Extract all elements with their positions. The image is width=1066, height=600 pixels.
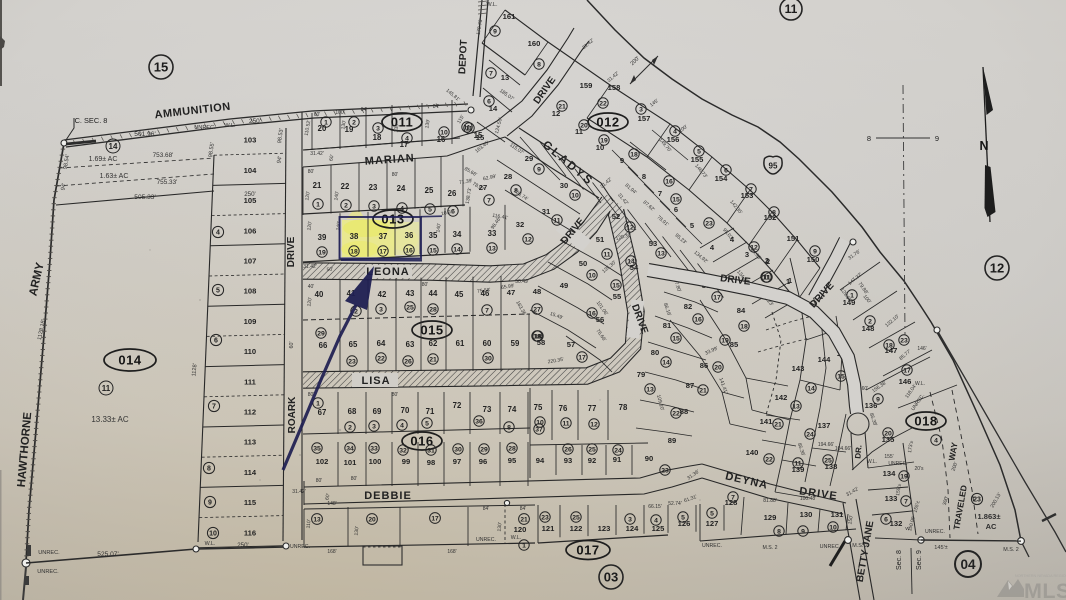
svg-text:18: 18 [350,248,358,255]
svg-text:8: 8 [537,61,541,68]
svg-text:23: 23 [900,337,908,344]
svg-text:11: 11 [562,420,569,427]
svg-text:UNREC.: UNREC. [925,529,945,535]
svg-text:W.L.: W.L. [486,2,498,8]
svg-text:21: 21 [558,103,566,110]
svg-text:84': 84' [483,506,490,512]
svg-text:130': 130' [497,522,504,532]
svg-text:140': 140' [435,223,442,233]
svg-text:15: 15 [612,282,620,289]
svg-text:7: 7 [904,498,908,505]
svg-text:66: 66 [319,341,328,350]
svg-text:6: 6 [487,98,491,105]
svg-text:DEBBIE: DEBBIE [364,490,412,502]
svg-text:125: 125 [652,524,665,533]
svg-text:9: 9 [493,28,497,35]
svg-text:UNREC.: UNREC. [476,537,496,543]
svg-text:60': 60' [328,154,335,162]
svg-text:24: 24 [806,431,814,438]
svg-text:100': 100' [335,110,344,116]
svg-text:102: 102 [316,457,329,466]
svg-text:110: 110 [244,347,256,356]
svg-text:7: 7 [485,307,489,314]
svg-text:93: 93 [564,456,572,465]
svg-text:25: 25 [406,304,414,311]
svg-text:71: 71 [426,407,435,416]
svg-text:42: 42 [378,290,387,299]
svg-text:28: 28 [429,306,437,313]
svg-text:79: 79 [637,370,645,379]
svg-text:7: 7 [487,197,491,204]
svg-text:34: 34 [346,445,354,452]
svg-text:100: 100 [369,457,382,466]
svg-text:89: 89 [668,436,676,445]
svg-text:114: 114 [244,468,257,477]
svg-text:1128': 1128' [191,363,198,377]
svg-text:4: 4 [216,230,220,237]
svg-text:14: 14 [807,385,815,392]
svg-text:14: 14 [453,246,461,253]
svg-text:127: 127 [706,519,719,528]
svg-text:3: 3 [372,423,376,430]
svg-text:17: 17 [713,294,721,301]
svg-text:137: 137 [818,421,831,430]
svg-text:24: 24 [614,447,622,454]
svg-text:14: 14 [662,359,670,366]
svg-text:69: 69 [373,407,382,416]
svg-text:92: 92 [588,456,596,465]
svg-text:32: 32 [516,220,524,229]
svg-text:156: 156 [667,135,680,144]
svg-text:60: 60 [483,339,492,348]
svg-text:9: 9 [813,248,817,255]
svg-text:14: 14 [109,142,118,151]
svg-text:8: 8 [507,424,511,431]
svg-text:MLS: MLS [1024,579,1066,600]
svg-text:95: 95 [508,456,517,465]
svg-text:45: 45 [455,290,464,299]
svg-text:106: 106 [244,226,257,235]
svg-text:Sec. 9: Sec. 9 [916,550,923,570]
svg-text:25: 25 [425,186,434,195]
svg-text:19: 19 [600,137,608,144]
svg-text:26: 26 [564,446,572,453]
svg-text:250': 250' [237,542,249,549]
svg-text:74: 74 [508,405,517,414]
svg-text:73: 73 [483,405,492,414]
svg-text:31.42': 31.42' [292,489,306,495]
svg-text:20's: 20's [914,466,924,472]
svg-text:2: 2 [352,119,356,126]
svg-text:109: 109 [244,317,257,326]
svg-text:AC: AC [986,522,997,531]
svg-text:168': 168' [447,549,456,555]
svg-text:4: 4 [934,437,938,444]
svg-text:47: 47 [507,288,515,297]
svg-text:146': 146' [917,346,926,352]
svg-text:129: 129 [764,513,777,522]
svg-text:12: 12 [626,224,634,231]
svg-text:10: 10 [571,192,579,199]
svg-text:9: 9 [208,500,212,507]
svg-text:501.96': 501.96' [134,131,155,138]
svg-text:13: 13 [488,245,496,252]
svg-text:012: 012 [596,114,619,129]
svg-text:35: 35 [313,445,321,452]
svg-text:21: 21 [313,181,322,190]
svg-text:9: 9 [537,166,541,173]
svg-text:113: 113 [244,438,256,447]
svg-text:11: 11 [465,125,472,132]
svg-text:31: 31 [427,447,435,454]
svg-text:80': 80' [422,282,429,288]
svg-text:107: 107 [244,257,257,266]
svg-text:UNREC.: UNREC. [702,543,722,549]
svg-text:4: 4 [400,422,404,429]
svg-text:29: 29 [480,446,488,453]
svg-text:1.63± AC: 1.63± AC [100,173,129,180]
svg-text:LISA: LISA [361,375,390,387]
svg-text:51: 51 [596,235,605,244]
svg-text:28: 28 [504,172,512,181]
svg-text:22: 22 [341,182,350,191]
svg-text:15: 15 [672,196,680,203]
svg-text:194.66': 194.66' [818,442,834,448]
svg-text:62: 62 [429,339,438,348]
svg-text:80': 80' [308,169,315,175]
svg-text:753.68': 753.68' [153,152,174,159]
svg-text:013: 013 [381,211,404,226]
svg-text:M.S. 2: M.S. 2 [763,545,778,551]
svg-text:55: 55 [613,292,622,301]
svg-text:6: 6 [674,205,678,214]
svg-text:123: 123 [598,524,611,533]
svg-text:31: 31 [542,207,551,216]
svg-text:52.74': 52.74' [668,501,682,507]
svg-text:8: 8 [867,134,871,143]
svg-text:37: 37 [535,426,543,433]
svg-text:7: 7 [749,186,753,193]
svg-text:148': 148' [327,501,336,507]
svg-text:23: 23 [973,497,981,504]
svg-text:13: 13 [501,73,509,82]
svg-text:122: 122 [570,524,583,533]
svg-text:9: 9 [876,396,880,403]
svg-text:3: 3 [372,203,376,210]
svg-text:UNREC.: UNREC. [38,550,60,556]
svg-text:115: 115 [244,498,257,507]
svg-text:W.L.: W.L. [205,541,216,547]
svg-text:63: 63 [406,340,415,349]
svg-text:29: 29 [525,154,533,163]
svg-text:22: 22 [377,355,385,362]
svg-text:6: 6 [724,167,728,174]
svg-text:6: 6 [214,338,218,345]
svg-text:1.863±: 1.863± [978,512,1001,521]
svg-text:91: 91 [613,455,622,464]
svg-text:59: 59 [511,339,520,348]
svg-text:15: 15 [154,60,168,75]
svg-text:15: 15 [672,335,680,342]
svg-text:4: 4 [654,517,658,524]
svg-text:13: 13 [657,250,665,257]
svg-text:141: 141 [760,417,773,426]
svg-text:61: 61 [456,339,465,348]
svg-text:80': 80' [392,392,399,398]
svg-text:13: 13 [646,386,654,393]
svg-text:11: 11 [603,251,610,258]
svg-text:76: 76 [559,404,568,413]
svg-text:NORTHERN NEVADA REGIONAL: NORTHERN NEVADA REGIONAL [1015,574,1066,578]
svg-text:018: 018 [914,413,937,428]
svg-text:85: 85 [730,340,739,349]
svg-text:34: 34 [453,230,462,239]
svg-text:12: 12 [590,421,598,428]
svg-text:16: 16 [665,178,673,185]
svg-text:5: 5 [681,514,685,521]
svg-text:3: 3 [628,516,632,523]
svg-text:66.15': 66.15' [648,504,662,510]
svg-text:101: 101 [344,458,357,467]
svg-text:UNREC.: UNREC. [194,125,216,131]
svg-text:24: 24 [397,184,406,193]
svg-text:25: 25 [588,446,596,453]
svg-text:1: 1 [522,542,526,549]
svg-text:111: 111 [244,377,257,386]
svg-text:3: 3 [639,106,643,113]
svg-text:26: 26 [404,358,412,365]
svg-text:7: 7 [212,404,216,411]
svg-text:150: 150 [807,255,820,264]
svg-text:W.L.: W.L. [224,123,236,129]
svg-text:121: 121 [542,524,555,533]
svg-text:N: N [979,139,988,153]
svg-text:56: 56 [596,315,604,324]
svg-text:21: 21 [774,421,782,428]
svg-text:145'±: 145'± [934,545,947,551]
svg-text:31.42': 31.42' [310,151,324,157]
svg-text:30: 30 [560,181,568,190]
svg-text:110': 110' [306,519,313,528]
svg-text:53: 53 [649,239,657,248]
svg-text:2: 2 [348,424,352,431]
svg-text:33: 33 [370,445,378,452]
svg-text:40': 40' [308,284,315,290]
svg-text:10: 10 [209,531,217,538]
svg-text:2: 2 [766,257,770,266]
svg-text:82: 82 [684,302,692,311]
svg-text:16: 16 [694,316,702,323]
svg-text:39: 39 [318,233,327,242]
svg-text:130: 130 [800,510,813,519]
svg-text:67: 67 [318,408,327,417]
svg-text:W.L.: W.L. [511,535,521,541]
svg-text:80: 80 [651,348,659,357]
svg-text:28: 28 [508,445,516,452]
svg-text:20: 20 [714,364,722,371]
svg-text:5: 5 [697,148,701,155]
svg-text:29: 29 [317,330,325,337]
svg-text:11: 11 [553,217,560,224]
svg-text:78: 78 [619,403,628,412]
svg-text:94: 94 [536,456,545,465]
svg-text:22: 22 [672,410,680,417]
svg-text:7: 7 [658,189,662,198]
svg-text:25: 25 [572,514,580,521]
svg-text:26: 26 [448,189,457,198]
svg-text:15: 15 [429,247,437,254]
svg-text:12: 12 [990,261,1004,276]
svg-text:57: 57 [567,340,575,349]
svg-text:5: 5 [428,206,432,213]
svg-text:120': 120' [304,191,311,201]
svg-text:99: 99 [402,457,410,466]
svg-text:18: 18 [885,342,893,349]
svg-text:015: 015 [420,322,443,337]
svg-text:80': 80' [392,172,399,178]
svg-text:23: 23 [705,220,713,227]
svg-text:9: 9 [935,134,939,143]
svg-text:5: 5 [710,510,714,517]
svg-text:142: 142 [775,393,788,402]
svg-text:97: 97 [453,457,461,466]
svg-text:60': 60' [314,112,321,118]
svg-text:52: 52 [612,212,620,221]
svg-text:98: 98 [427,458,435,467]
svg-text:16: 16 [405,247,413,254]
svg-text:18: 18 [740,323,748,330]
svg-text:4: 4 [405,135,409,142]
svg-text:20: 20 [884,430,892,437]
svg-text:M.S. 2: M.S. 2 [1003,547,1019,553]
svg-text:17: 17 [578,354,586,361]
svg-text:2: 2 [868,318,872,325]
svg-text:7: 7 [489,70,493,77]
svg-text:8: 8 [207,466,211,473]
svg-text:158: 158 [608,83,621,92]
svg-text:80': 80' [351,476,358,482]
svg-text:1: 1 [324,119,328,126]
svg-text:8: 8 [642,172,646,181]
svg-text:1: 1 [316,201,320,208]
svg-text:161: 161 [503,12,516,21]
svg-text:159: 159 [580,81,593,90]
svg-text:95: 95 [769,162,778,171]
svg-text:11: 11 [102,384,111,393]
svg-text:120': 120' [306,221,313,231]
svg-text:11: 11 [785,2,798,16]
svg-text:21: 21 [699,387,707,394]
svg-text:19: 19 [318,249,326,256]
svg-text:10: 10 [440,129,448,136]
svg-text:250': 250' [249,118,261,125]
svg-text:C. SEC. 8: C. SEC. 8 [75,116,108,125]
svg-text:14: 14 [627,258,635,265]
svg-text:3: 3 [379,306,383,313]
svg-text:104: 104 [244,166,257,175]
svg-text:04: 04 [960,557,976,572]
svg-text:03: 03 [604,570,618,585]
svg-text:17: 17 [379,248,387,255]
svg-text:1.69± AC: 1.69± AC [89,156,118,163]
svg-text:20: 20 [580,122,588,129]
svg-text:112: 112 [244,408,256,417]
svg-text:3: 3 [745,250,749,259]
svg-text:90: 90 [645,454,653,463]
svg-text:130': 130' [354,526,361,536]
svg-text:49: 49 [560,281,568,290]
svg-text:72: 72 [453,401,462,410]
svg-text:Sec. 8: Sec. 8 [896,550,903,570]
svg-text:50: 50 [579,259,587,268]
svg-text:22: 22 [765,456,773,463]
svg-text:160: 160 [528,39,541,48]
svg-text:37: 37 [379,232,388,241]
svg-text:36: 36 [405,231,414,240]
svg-text:32: 32 [399,447,407,454]
svg-text:7: 7 [731,494,735,501]
svg-text:64: 64 [377,339,386,348]
svg-text:43: 43 [406,289,415,298]
svg-text:84': 84' [433,104,440,110]
svg-text:4: 4 [673,128,677,135]
svg-text:5: 5 [216,288,220,295]
svg-text:UNREC.: UNREC. [888,461,907,467]
svg-text:27: 27 [533,306,541,313]
svg-text:68: 68 [348,407,357,416]
svg-text:124: 124 [626,524,639,533]
svg-text:108: 108 [244,287,257,296]
svg-text:6: 6 [884,516,888,523]
svg-text:755.33': 755.33' [157,179,178,186]
svg-text:11: 11 [794,460,801,467]
svg-text:81: 81 [663,321,672,330]
svg-text:151: 151 [787,234,800,243]
svg-text:140': 140' [333,191,340,201]
svg-text:18: 18 [630,151,638,158]
svg-text:94': 94' [60,183,67,191]
svg-text:13: 13 [313,516,321,523]
svg-text:36: 36 [475,418,483,425]
svg-text:84': 84' [361,107,368,113]
svg-text:70: 70 [401,406,410,415]
svg-text:014: 014 [118,352,141,367]
svg-text:DR.: DR. [853,445,863,460]
svg-text:1: 1 [316,400,320,407]
svg-text:65: 65 [349,340,358,349]
svg-text:18: 18 [373,133,382,142]
svg-text:96: 96 [479,457,487,466]
svg-text:23: 23 [348,358,356,365]
svg-text:140: 140 [746,448,759,457]
svg-text:103: 103 [244,136,257,145]
svg-text:DRIVE: DRIVE [286,236,297,267]
svg-text:168': 168' [327,549,336,555]
svg-text:13.33± AC: 13.33± AC [91,415,129,424]
svg-text:10: 10 [588,272,596,279]
svg-text:8: 8 [772,209,776,216]
svg-text:250': 250' [244,191,256,198]
svg-text:23: 23 [541,514,549,521]
svg-text:12: 12 [750,244,758,251]
svg-text:3: 3 [376,125,380,132]
svg-text:146: 146 [899,377,912,386]
svg-text:017: 017 [576,542,599,557]
svg-text:5: 5 [425,420,429,427]
svg-text:94': 94' [276,156,283,164]
svg-text:132: 132 [890,519,903,528]
svg-text:9: 9 [801,528,805,535]
